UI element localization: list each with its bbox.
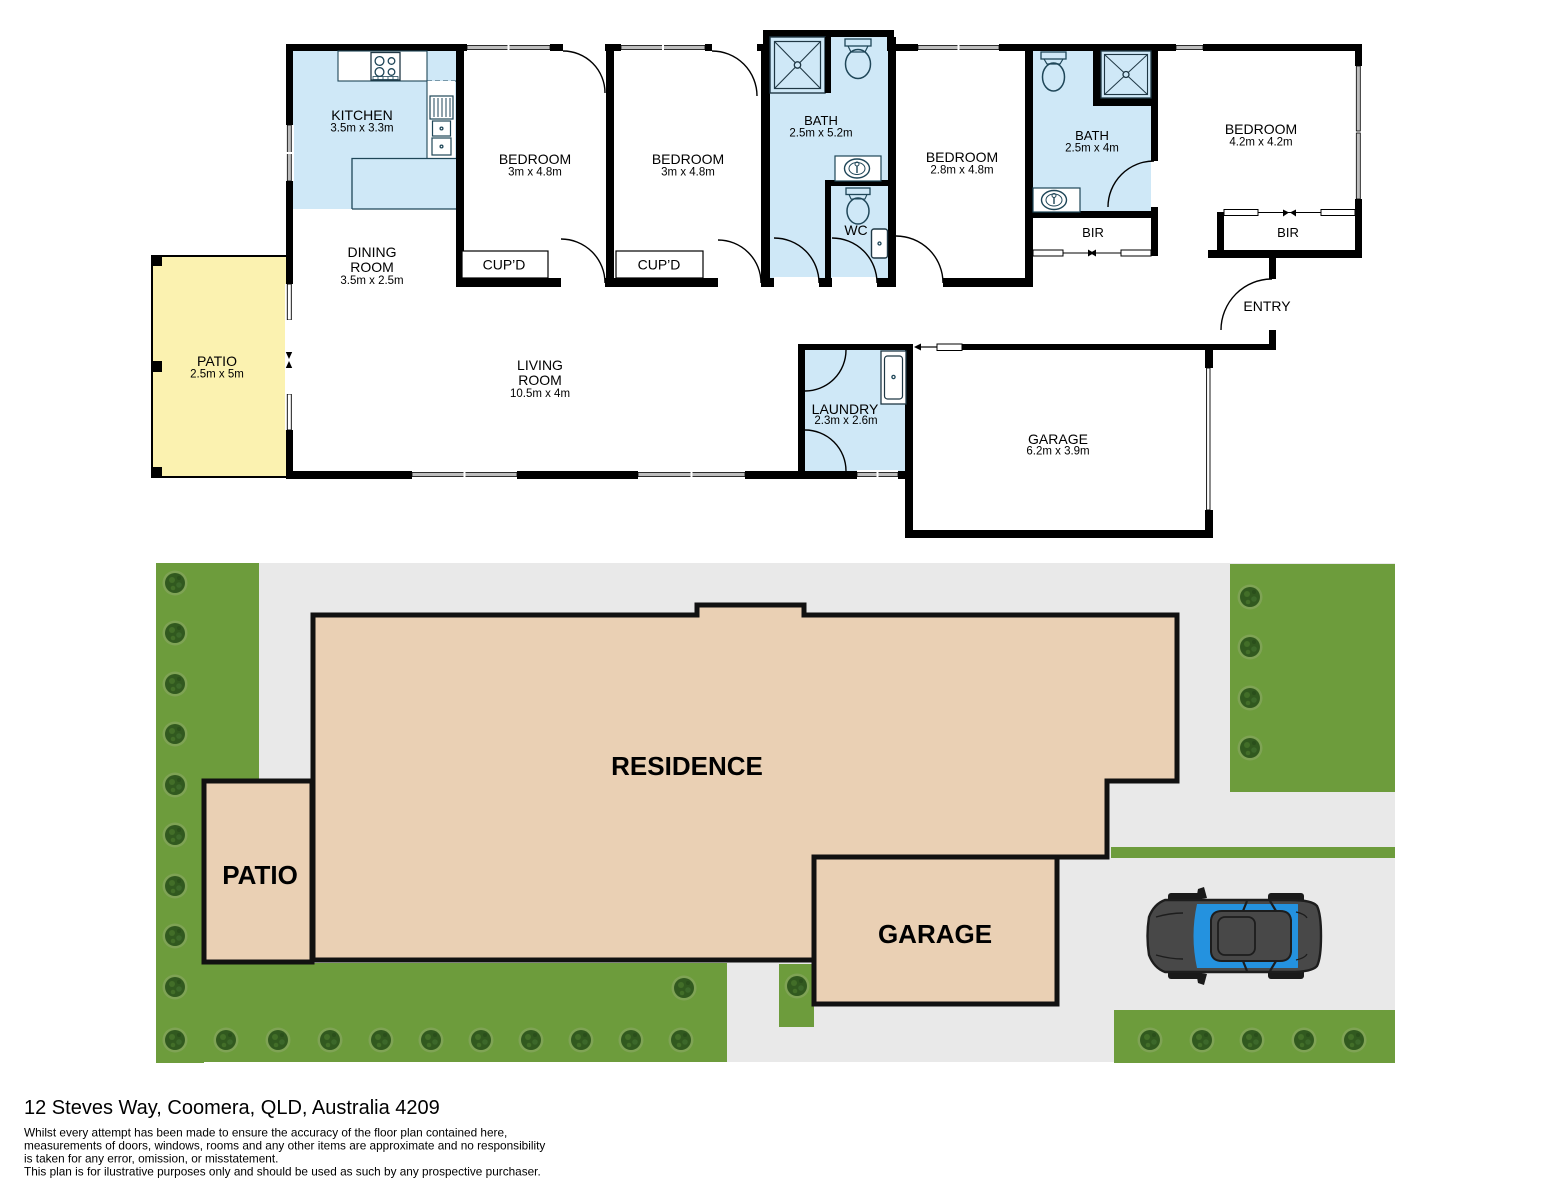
svg-text:3.5m x 2.5m: 3.5m x 2.5m [340,275,403,287]
svg-text:Whilst every attempt has been: Whilst every attempt has been made to en… [24,1126,507,1140]
svg-text:PATIO: PATIO [222,860,298,890]
svg-text:RESIDENCE: RESIDENCE [611,751,763,781]
svg-text:BEDROOM: BEDROOM [1225,121,1297,137]
svg-text:CUP’D: CUP’D [483,257,526,273]
svg-text:ENTRY: ENTRY [1243,298,1291,314]
svg-text:BIR: BIR [1277,225,1299,240]
svg-text:4.2m x 4.2m: 4.2m x 4.2m [1229,137,1292,149]
svg-text:BIR: BIR [1082,225,1104,240]
svg-text:BEDROOM: BEDROOM [499,151,571,167]
svg-text:2.5m x 5.2m: 2.5m x 5.2m [789,128,852,140]
svg-text:2.3m x 2.6m: 2.3m x 2.6m [814,415,877,427]
svg-text:12 Steves Way, Coomera, QLD, A: 12 Steves Way, Coomera, QLD, Australia 4… [24,1097,440,1119]
svg-text:WC: WC [844,222,867,238]
svg-text:This plan is for ilustrative p: This plan is for ilustrative purposes on… [24,1165,541,1179]
svg-text:ROOM: ROOM [518,372,562,388]
svg-text:2.5m x 5m: 2.5m x 5m [190,369,244,381]
svg-text:GARAGE: GARAGE [878,919,992,949]
svg-text:DINING: DINING [348,244,397,260]
svg-text:is taken for any error, omissi: is taken for any error, omission, or mis… [24,1152,278,1166]
svg-text:BEDROOM: BEDROOM [926,149,998,165]
svg-text:LIVING: LIVING [517,357,563,373]
svg-text:2.5m x 4m: 2.5m x 4m [1065,143,1119,155]
svg-text:3m x 4.8m: 3m x 4.8m [661,167,715,179]
svg-text:3m x 4.8m: 3m x 4.8m [508,167,562,179]
svg-text:2.8m x 4.8m: 2.8m x 4.8m [930,165,993,177]
svg-text:3.5m x 3.3m: 3.5m x 3.3m [330,123,393,135]
svg-text:PATIO: PATIO [197,353,237,369]
svg-text:KITCHEN: KITCHEN [331,107,392,123]
svg-text:10.5m x 4m: 10.5m x 4m [510,388,570,400]
svg-text:BEDROOM: BEDROOM [652,151,724,167]
svg-text:6.2m x 3.9m: 6.2m x 3.9m [1026,446,1089,458]
svg-text:measurements of doors, windows: measurements of doors, windows, rooms an… [24,1139,545,1153]
svg-text:ROOM: ROOM [350,259,394,275]
svg-text:CUP’D: CUP’D [638,257,681,273]
svg-text:BATH: BATH [1075,128,1109,143]
svg-text:BATH: BATH [804,113,838,128]
